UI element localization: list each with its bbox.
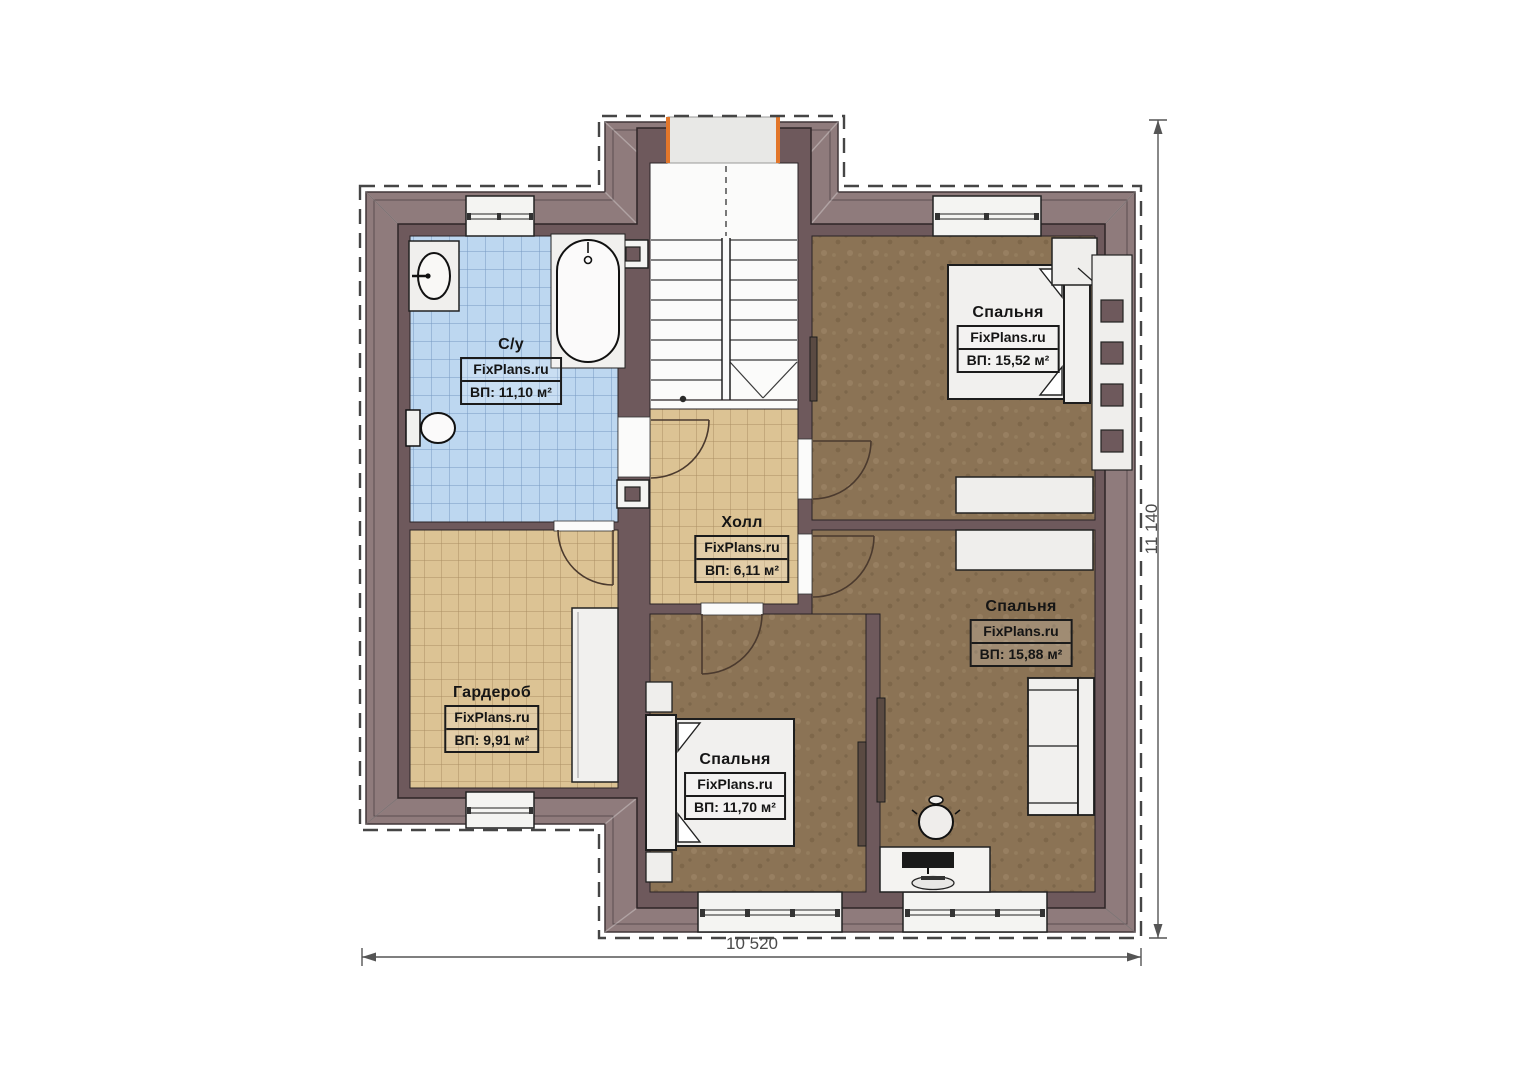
room-label-bathroom: С/у FixPlans.ru ВП: 11,10 м² — [460, 336, 562, 405]
watermark: FixPlans.ru — [462, 359, 560, 380]
room-area: ВП: 15,88 м² — [972, 642, 1071, 665]
room-label-bedroom-top: Спальня FixPlans.ru ВП: 15,52 м² — [957, 304, 1060, 373]
room-name: С/у — [460, 336, 562, 354]
room-area: ВП: 11,10 м² — [462, 380, 560, 403]
room-area: ВП: 11,70 м² — [686, 795, 784, 818]
room-label-wardrobe: Гардероб FixPlans.ru ВП: 9,91 м² — [444, 684, 539, 753]
room-name: Холл — [694, 514, 789, 532]
watermark: FixPlans.ru — [446, 707, 537, 728]
room-name: Спальня — [957, 304, 1060, 322]
stair-start-dot — [680, 396, 686, 402]
vent-shaft-icon — [617, 480, 649, 508]
floor-plan-page: С/у FixPlans.ru ВП: 11,10 м² Холл FixPla… — [0, 0, 1528, 1080]
room-info-box: FixPlans.ru ВП: 15,88 м² — [970, 619, 1073, 667]
window-icon — [933, 196, 1041, 236]
closet-icon — [1052, 238, 1097, 285]
room-info-box: FixPlans.ru ВП: 11,10 м² — [460, 357, 562, 405]
dimension-height: 11 140 — [1142, 504, 1162, 555]
wardrobe-cabinet — [572, 608, 618, 782]
sofa-icon — [1028, 678, 1094, 815]
room-name: Гардероб — [444, 684, 539, 702]
toilet-icon — [406, 410, 455, 446]
dresser-icon — [956, 477, 1093, 513]
room-info-box: FixPlans.ru ВП: 11,70 м² — [684, 772, 786, 820]
nightstand-icon — [646, 682, 672, 712]
sink-icon — [409, 241, 459, 311]
nightstand-icon — [646, 852, 672, 882]
watermark: FixPlans.ru — [959, 327, 1058, 348]
bathtub-icon — [551, 234, 625, 368]
room-label-bedroom-bottom: Спальня FixPlans.ru ВП: 11,70 м² — [684, 751, 786, 820]
room-area: ВП: 15,52 м² — [959, 348, 1058, 371]
room-area: ВП: 6,11 м² — [696, 558, 787, 581]
window-icon — [698, 892, 842, 932]
watermark: FixPlans.ru — [972, 621, 1071, 642]
desk-icon — [880, 847, 990, 892]
window-icon — [466, 196, 534, 236]
dresser-icon — [956, 530, 1093, 570]
room-info-box: FixPlans.ru ВП: 6,11 м² — [694, 535, 789, 583]
room-area: ВП: 9,91 м² — [446, 728, 537, 751]
entrance-opening — [666, 117, 780, 163]
room-name: Спальня — [970, 598, 1073, 616]
window-icon — [903, 892, 1047, 932]
window-icon — [466, 792, 534, 828]
room-info-box: FixPlans.ru ВП: 9,91 м² — [444, 705, 539, 753]
dimension-width: 10 520 — [726, 934, 778, 954]
room-label-hall: Холл FixPlans.ru ВП: 6,11 м² — [694, 514, 789, 583]
stairwell-floor — [650, 163, 798, 409]
room-name: Спальня — [684, 751, 786, 769]
nightstand-shelves — [1092, 255, 1132, 470]
room-info-box: FixPlans.ru ВП: 15,52 м² — [957, 325, 1060, 373]
watermark: FixPlans.ru — [686, 774, 784, 795]
watermark: FixPlans.ru — [696, 537, 787, 558]
room-label-bedroom-right: Спальня FixPlans.ru ВП: 15,88 м² — [970, 598, 1073, 667]
